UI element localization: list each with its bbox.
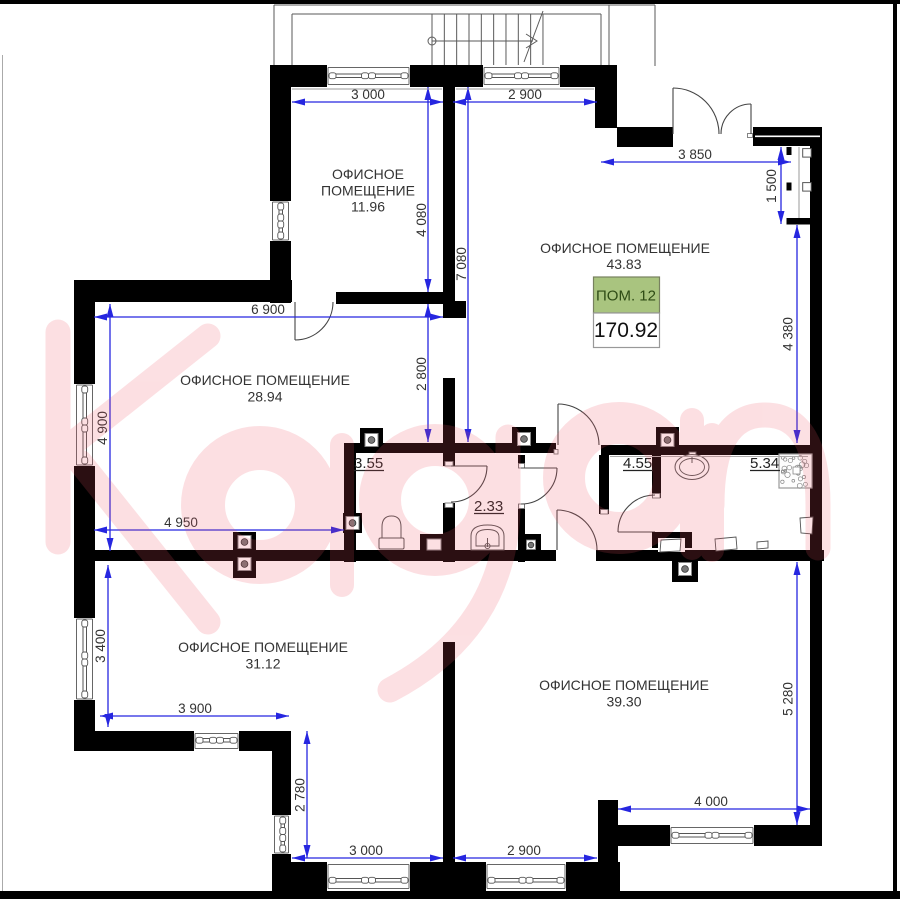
svg-text:170.92: 170.92 (594, 319, 658, 342)
svg-text:6 900: 6 900 (251, 302, 285, 317)
svg-text:28.94: 28.94 (247, 389, 282, 405)
svg-text:3 400: 3 400 (93, 629, 108, 663)
svg-text:4 000: 4 000 (694, 794, 728, 809)
svg-text:3 000: 3 000 (349, 843, 383, 858)
svg-text:2 780: 2 780 (293, 778, 308, 812)
svg-text:ПОМЕЩЕНИЕ: ПОМЕЩЕНИЕ (321, 182, 415, 198)
svg-text:1 500: 1 500 (764, 169, 779, 203)
svg-text:3 900: 3 900 (178, 701, 212, 716)
svg-text:2 800: 2 800 (414, 357, 429, 391)
svg-text:ОФИСНОЕ: ОФИСНОЕ (332, 166, 404, 182)
svg-text:ОФИСНОЕ ПОМЕЩЕНИЕ: ОФИСНОЕ ПОМЕЩЕНИЕ (540, 240, 710, 256)
svg-text:ОФИСНОЕ ПОМЕЩЕНИЕ: ОФИСНОЕ ПОМЕЩЕНИЕ (178, 639, 348, 655)
svg-text:3 850: 3 850 (678, 147, 712, 162)
svg-text:ПОМ. 12: ПОМ. 12 (596, 288, 656, 305)
svg-text:31.12: 31.12 (245, 656, 280, 672)
svg-text:4 380: 4 380 (781, 317, 796, 351)
svg-text:ОФИСНОЕ ПОМЕЩЕНИЕ: ОФИСНОЕ ПОМЕЩЕНИЕ (539, 677, 709, 693)
svg-text:43.83: 43.83 (606, 256, 641, 272)
svg-text:11.96: 11.96 (351, 199, 385, 215)
svg-text:2 900: 2 900 (507, 843, 541, 858)
svg-text:5.34: 5.34 (750, 455, 779, 472)
svg-text:4 080: 4 080 (414, 203, 429, 237)
svg-text:7 080: 7 080 (454, 247, 469, 281)
svg-text:5 280: 5 280 (781, 682, 796, 716)
svg-text:ОФИСНОЕ ПОМЕЩЕНИЕ: ОФИСНОЕ ПОМЕЩЕНИЕ (180, 372, 350, 388)
svg-text:39.30: 39.30 (606, 694, 641, 710)
